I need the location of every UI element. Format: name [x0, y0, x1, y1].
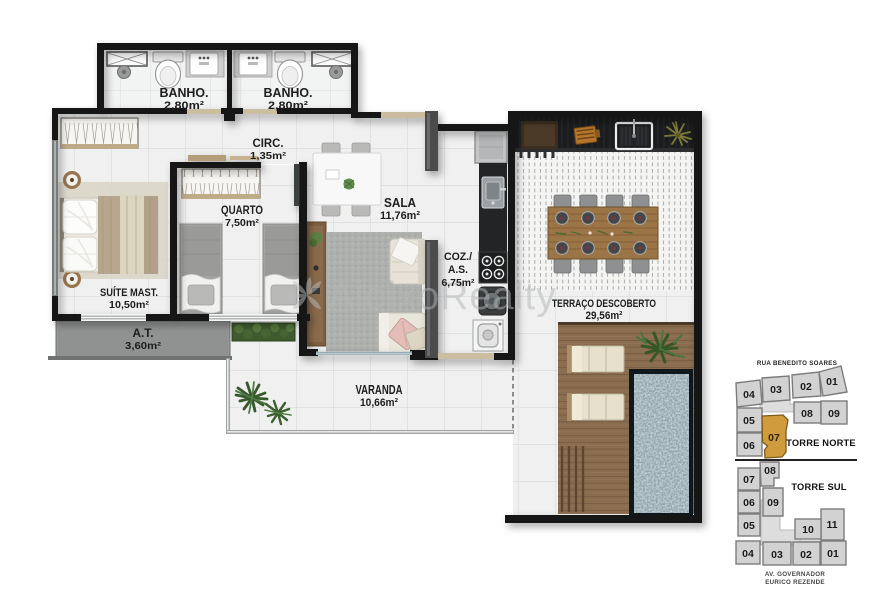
svg-text:01: 01 [826, 376, 838, 388]
svg-text:AV. GOVERNADOR: AV. GOVERNADOR [765, 571, 825, 578]
svg-text:09: 09 [767, 497, 779, 509]
svg-text:01: 01 [827, 548, 839, 560]
svg-text:07: 07 [743, 474, 755, 486]
svg-text:11,76m²: 11,76m² [380, 210, 420, 222]
svg-text:A.S.: A.S. [448, 264, 468, 276]
svg-text:COZ./: COZ./ [444, 251, 472, 263]
svg-text:6,75m²: 6,75m² [442, 278, 476, 289]
svg-text:RUA BENEDITO SOARES: RUA BENEDITO SOARES [757, 360, 837, 367]
svg-text:03: 03 [771, 549, 783, 561]
svg-text:A.T.: A.T. [133, 328, 154, 340]
svg-text:06: 06 [743, 497, 755, 509]
svg-text:10,50m²: 10,50m² [109, 300, 150, 311]
svg-text:SUÍTE MAST.: SUÍTE MAST. [100, 286, 158, 299]
svg-text:11: 11 [826, 519, 837, 531]
svg-text:04: 04 [742, 548, 754, 560]
svg-text:2,80m²: 2,80m² [268, 100, 308, 112]
svg-text:3,60m²: 3,60m² [125, 340, 162, 352]
svg-text:02: 02 [800, 381, 812, 393]
svg-text:02: 02 [800, 549, 812, 561]
svg-text:05: 05 [743, 520, 755, 532]
svg-text:09: 09 [828, 408, 840, 420]
svg-text:EURICO REZENDE: EURICO REZENDE [765, 579, 825, 586]
svg-text:7,50m²: 7,50m² [225, 218, 260, 229]
svg-text:TORRE NORTE: TORRE NORTE [786, 438, 856, 448]
svg-text:03: 03 [770, 384, 782, 396]
svg-text:07: 07 [768, 432, 780, 444]
svg-text:TORRE SUL: TORRE SUL [791, 482, 846, 492]
svg-text:10,66m²: 10,66m² [360, 397, 398, 409]
svg-text:QUARTO: QUARTO [221, 204, 263, 217]
svg-text:05: 05 [743, 415, 755, 427]
svg-text:BANHO.: BANHO. [160, 86, 209, 100]
svg-text:BANHO.: BANHO. [264, 86, 313, 100]
svg-text:VARANDA: VARANDA [356, 383, 403, 397]
svg-text:29,56m²: 29,56m² [586, 310, 623, 322]
svg-text:08: 08 [764, 465, 776, 477]
svg-text:10: 10 [802, 524, 814, 536]
svg-text:1,35m²: 1,35m² [250, 150, 287, 162]
svg-text:08: 08 [801, 408, 813, 420]
svg-text:SALA: SALA [384, 196, 416, 210]
svg-text:2,80m²: 2,80m² [164, 100, 204, 112]
svg-text:CIRC.: CIRC. [253, 138, 284, 150]
svg-text:04: 04 [743, 389, 755, 401]
svg-text:TERRAÇO DESCOBERTO: TERRAÇO DESCOBERTO [552, 298, 656, 310]
svg-text:06: 06 [743, 440, 755, 452]
